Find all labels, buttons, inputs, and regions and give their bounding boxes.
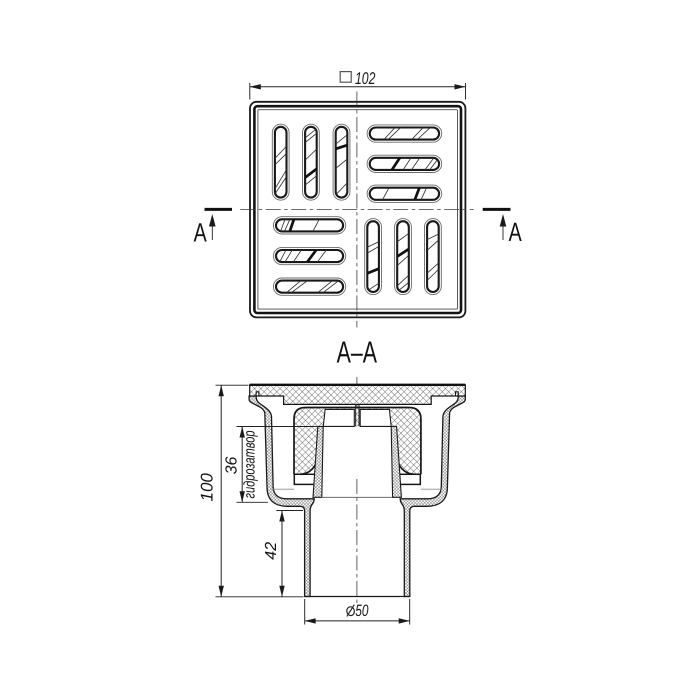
svg-text:A: A	[509, 217, 522, 247]
svg-text:гидрозатвор: гидрозатвор	[242, 430, 259, 498]
svg-text:A–A: A–A	[337, 335, 378, 369]
svg-text:36: 36	[224, 457, 241, 475]
svg-text:50: 50	[355, 602, 369, 620]
svg-text:102: 102	[355, 69, 376, 88]
svg-text:100: 100	[198, 473, 217, 502]
svg-text:A: A	[194, 218, 207, 248]
svg-text:42: 42	[263, 542, 280, 560]
